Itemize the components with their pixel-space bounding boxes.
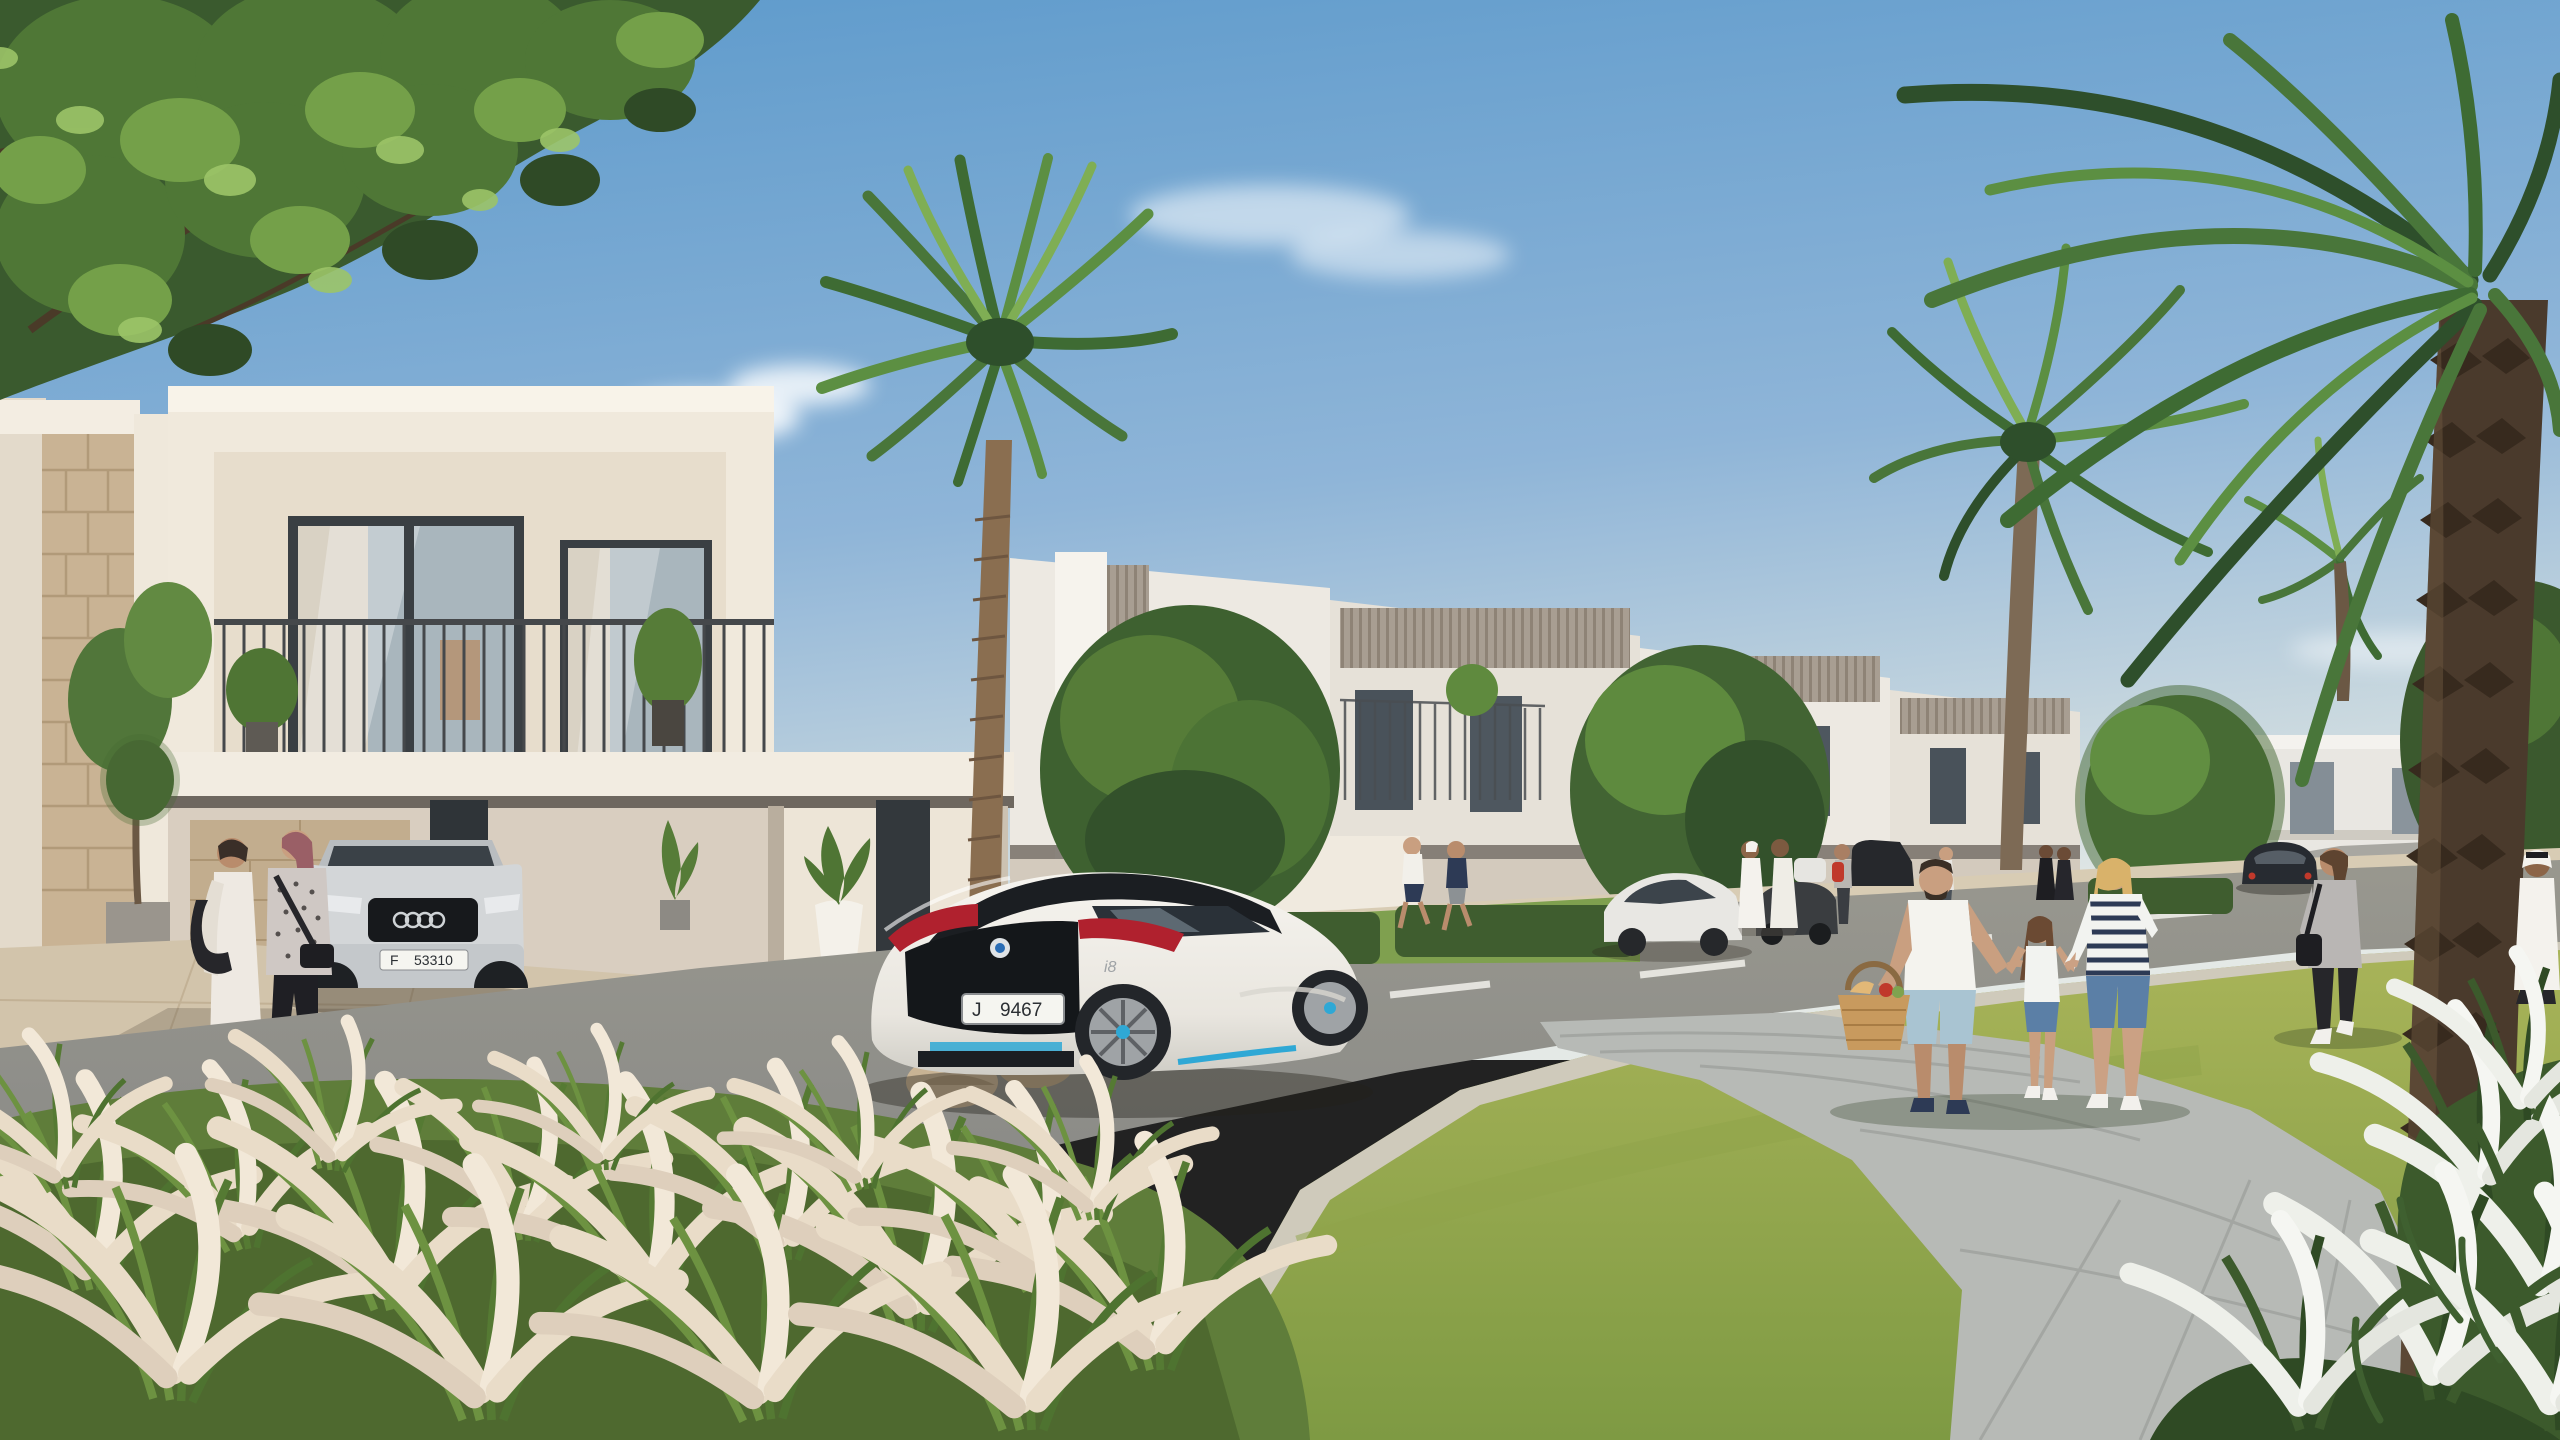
estate-car-plate: F 53310 [380,950,468,970]
estate-plate-number: 53310 [414,952,453,968]
coupe-wheel-front [1292,970,1368,1046]
coupe-plate-letter: J [972,1000,982,1021]
model-badge: i8 [1104,959,1117,976]
rendered-scene: F 53310 [0,0,2560,1440]
coupe-plate-number: 9467 [1000,1000,1042,1021]
sports-coupe-plate: J 9467 [962,994,1064,1024]
estate-plate-letter: F [390,952,399,968]
